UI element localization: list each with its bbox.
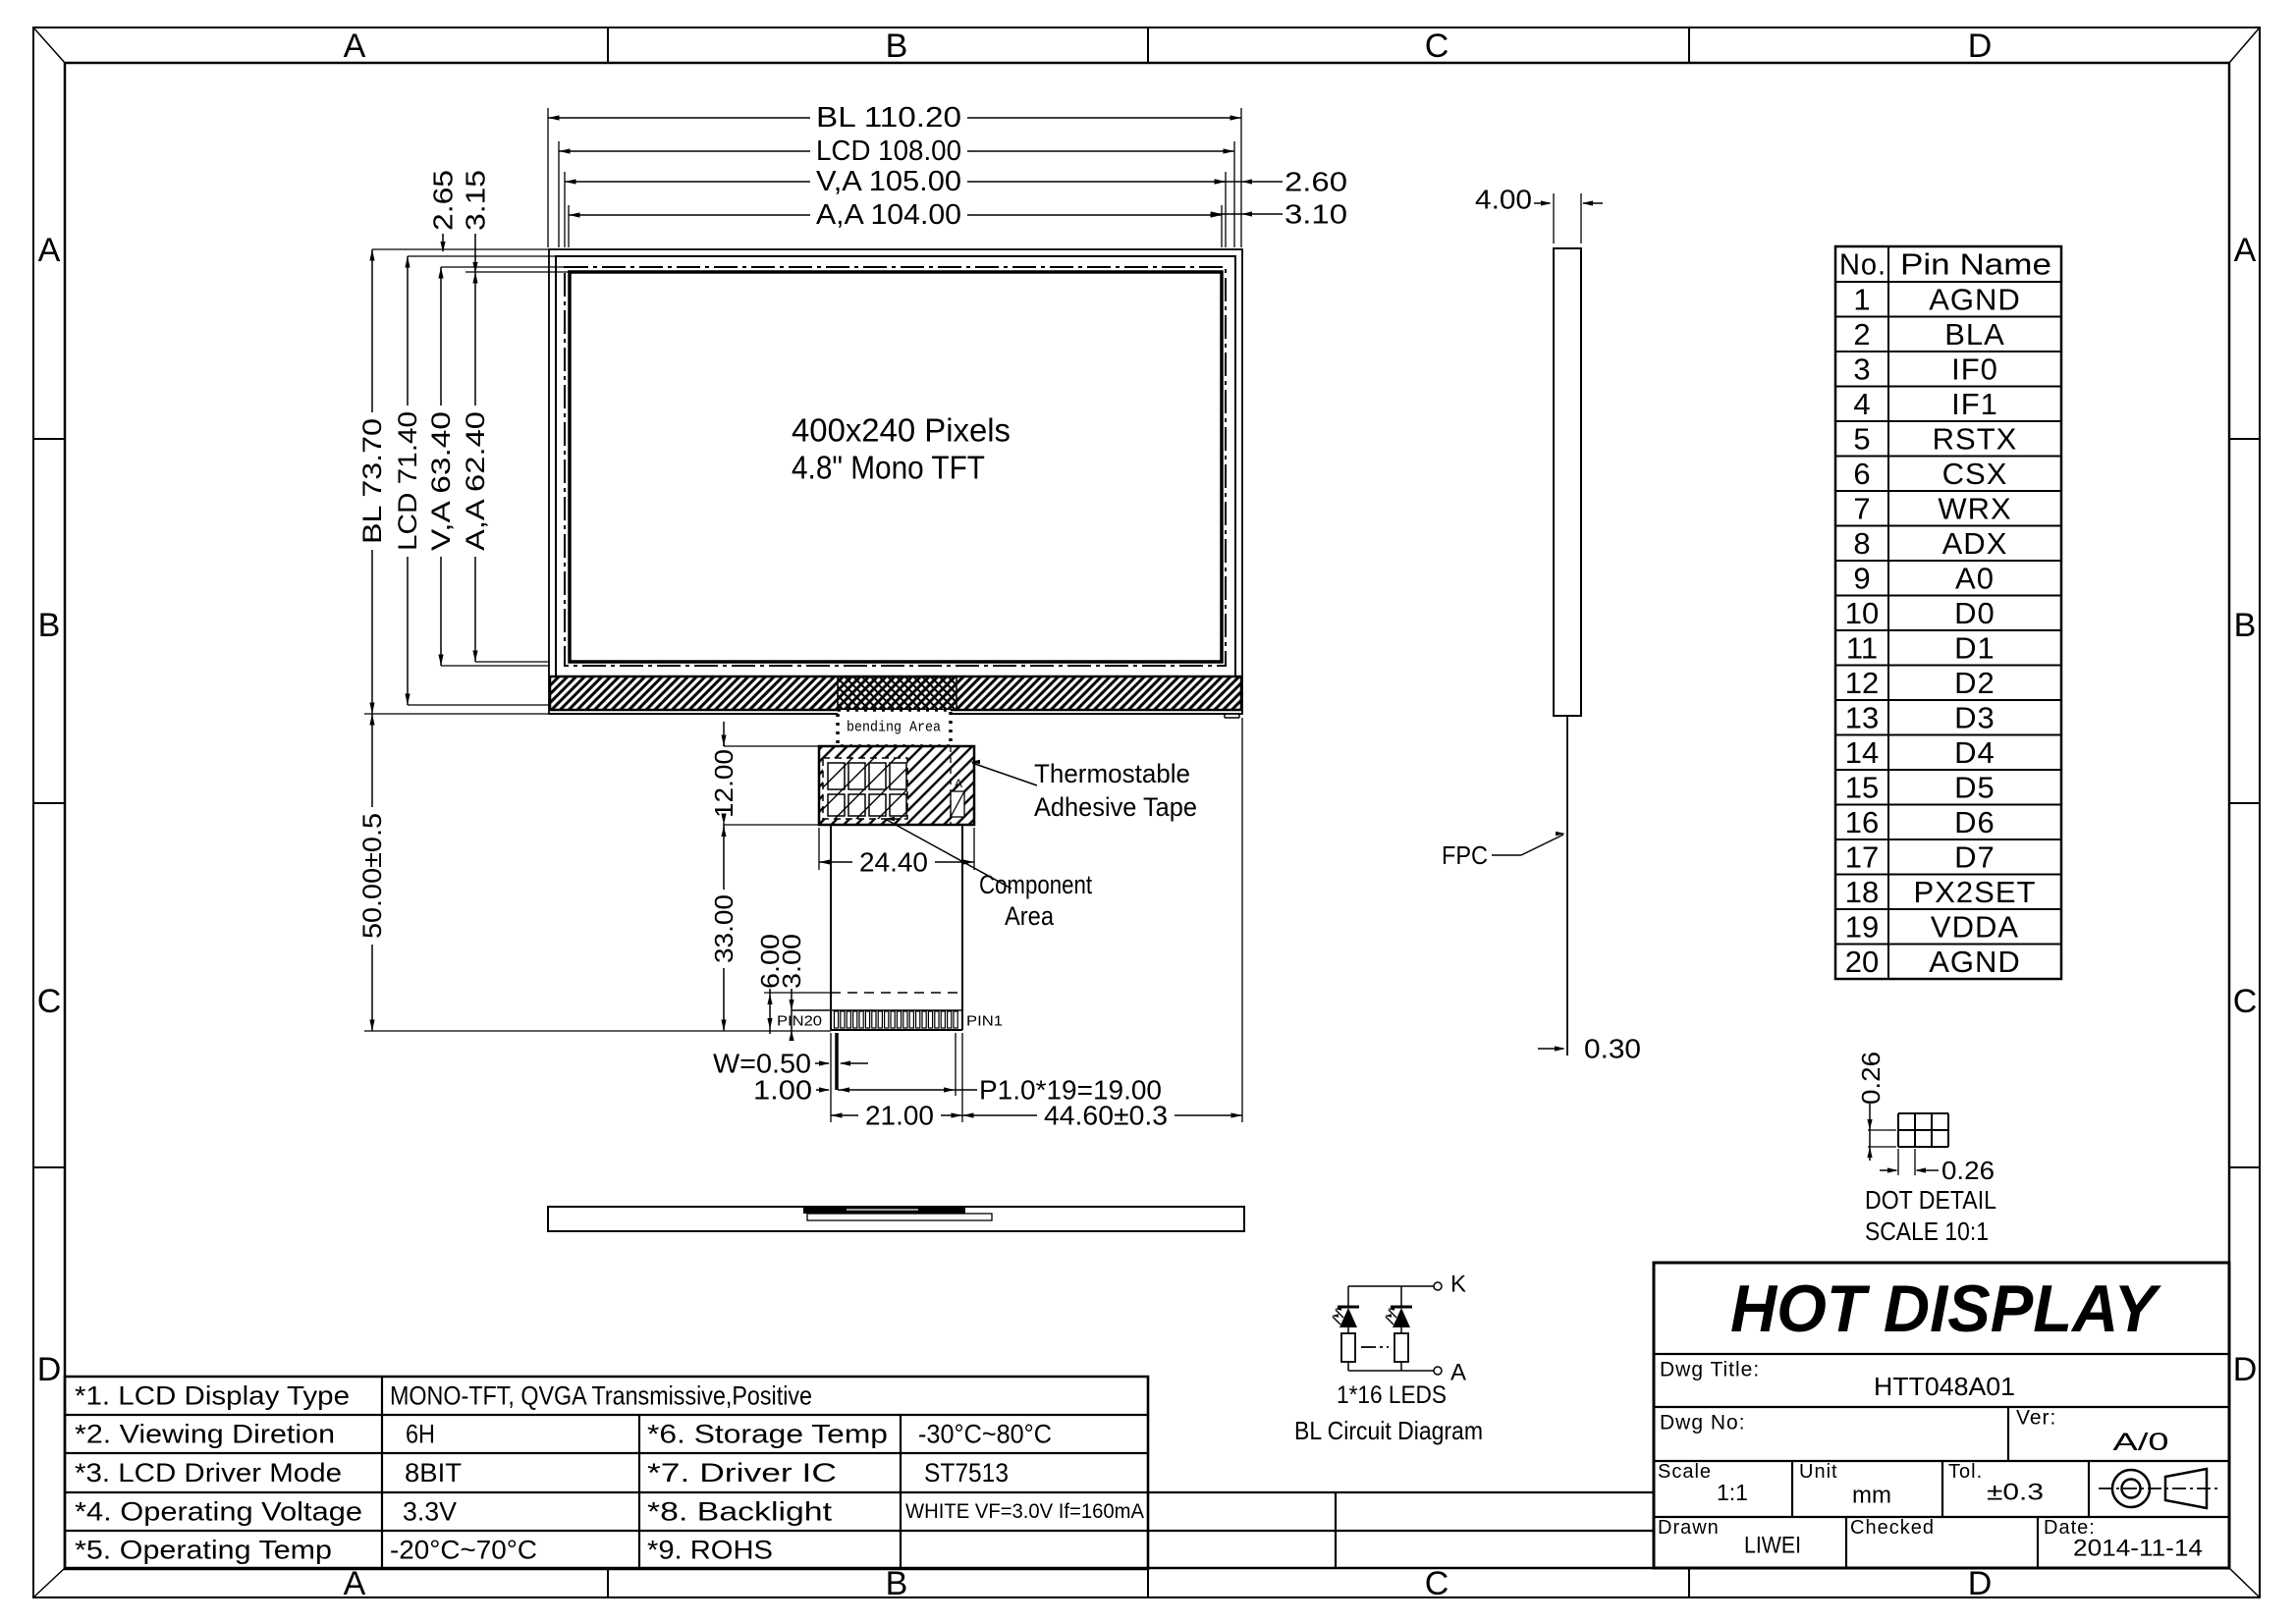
svg-text:A0: A0 <box>1955 561 1995 595</box>
svg-text:±0.3: ±0.3 <box>1987 1480 2044 1506</box>
svg-text:Checked: Checked <box>1850 1517 1935 1539</box>
svg-text:A: A <box>1450 1360 1466 1386</box>
svg-text:V,A 105.00: V,A 105.00 <box>816 166 961 197</box>
svg-text:1.00: 1.00 <box>753 1075 812 1106</box>
svg-text:10: 10 <box>1845 596 1879 630</box>
svg-text:13: 13 <box>1845 700 1879 734</box>
svg-text:Pin Name: Pin Name <box>1900 247 2051 282</box>
svg-text:Thermostable: Thermostable <box>1034 759 1190 788</box>
svg-text:*8. Backlight: *8. Backlight <box>647 1497 833 1527</box>
svg-text:PIN1: PIN1 <box>966 1013 1003 1030</box>
svg-text:PIN20: PIN20 <box>777 1013 822 1030</box>
svg-text:3.3V: 3.3V <box>403 1497 457 1527</box>
svg-text:2.60: 2.60 <box>1285 167 1347 197</box>
svg-text:A: A <box>344 1565 366 1602</box>
svg-text:*7. Driver IC: *7. Driver IC <box>647 1458 837 1488</box>
svg-text:D5: D5 <box>1954 770 1995 804</box>
svg-text:IF1: IF1 <box>1951 387 1998 421</box>
svg-text:*5. Operating Temp: *5. Operating Temp <box>75 1536 332 1565</box>
svg-text:A: A <box>38 232 61 269</box>
svg-text:B: B <box>2234 607 2257 644</box>
svg-text:WHITE VF=3.0V If=160mA: WHITE VF=3.0V If=160mA <box>905 1500 1144 1523</box>
svg-text:LCD 108.00: LCD 108.00 <box>816 135 961 167</box>
svg-text:*6. Storage Temp: *6. Storage Temp <box>647 1420 888 1449</box>
svg-text:BL 73.70: BL 73.70 <box>357 418 387 544</box>
svg-text:8: 8 <box>1853 526 1870 561</box>
svg-text:A,A 62.40: A,A 62.40 <box>461 411 490 551</box>
svg-text:PX2SET: PX2SET <box>1914 875 2037 909</box>
svg-text:V,A 63.40: V,A 63.40 <box>426 411 456 551</box>
svg-text:-20°C~70°C: -20°C~70°C <box>390 1536 537 1565</box>
svg-text:AGND: AGND <box>1929 282 2021 316</box>
svg-text:*1. LCD Display Type: *1. LCD Display Type <box>75 1381 350 1411</box>
svg-text:C: C <box>1425 27 1449 65</box>
svg-text:MONO-TFT, QVGA Transmissive,Po: MONO-TFT, QVGA Transmissive,Positive <box>390 1381 812 1411</box>
svg-text:SCALE 10:1: SCALE 10:1 <box>1865 1217 1989 1246</box>
svg-text:50.00±0.5: 50.00±0.5 <box>357 813 387 939</box>
svg-text:Tol.: Tol. <box>1948 1461 1983 1483</box>
svg-text:6H: 6H <box>406 1420 435 1449</box>
svg-text:No.: No. <box>1839 247 1886 282</box>
svg-text:1*16 LEDS: 1*16 LEDS <box>1337 1381 1447 1409</box>
svg-text:Component: Component <box>979 870 1092 899</box>
svg-text:CSX: CSX <box>1942 457 2008 491</box>
svg-text:0.26: 0.26 <box>1941 1156 1995 1185</box>
svg-text:2014-11-14: 2014-11-14 <box>2073 1536 2203 1562</box>
svg-text:400x240 Pixels: 400x240 Pixels <box>792 412 1011 449</box>
svg-text:12.00: 12.00 <box>709 749 738 818</box>
svg-text:BL Circuit Diagram: BL Circuit Diagram <box>1294 1416 1483 1445</box>
svg-text:Dwg Title:: Dwg Title: <box>1660 1359 1760 1381</box>
svg-text:8BIT: 8BIT <box>405 1458 462 1488</box>
svg-text:20: 20 <box>1845 945 1879 979</box>
svg-text:RSTX: RSTX <box>1933 421 2018 456</box>
svg-text:24.40: 24.40 <box>859 847 928 878</box>
svg-text:Drawn: Drawn <box>1658 1517 1720 1539</box>
svg-text:HOT DISPLAY: HOT DISPLAY <box>1730 1271 2161 1346</box>
svg-text:19: 19 <box>1845 909 1879 944</box>
svg-text:K: K <box>1450 1271 1466 1298</box>
svg-text:3.10: 3.10 <box>1285 199 1347 230</box>
svg-text:A,A 104.00: A,A 104.00 <box>816 199 961 231</box>
svg-text:ST7513: ST7513 <box>924 1458 1009 1488</box>
svg-text:D0: D0 <box>1954 596 1995 630</box>
svg-text:3: 3 <box>1853 352 1870 386</box>
svg-text:4: 4 <box>1853 387 1870 421</box>
svg-text:D: D <box>37 1351 62 1388</box>
svg-text:Area: Area <box>1005 901 1055 931</box>
svg-text:IF0: IF0 <box>1951 352 1998 386</box>
svg-text:21.00: 21.00 <box>865 1101 934 1131</box>
svg-text:Adhesive Tape: Adhesive Tape <box>1034 792 1197 822</box>
svg-text:A: A <box>344 27 366 65</box>
svg-text:WRX: WRX <box>1938 491 2011 525</box>
svg-text:mm: mm <box>1852 1483 1891 1509</box>
svg-text:B: B <box>38 607 61 644</box>
svg-text:0.26: 0.26 <box>1856 1052 1886 1105</box>
svg-text:9: 9 <box>1853 561 1870 595</box>
svg-text:14: 14 <box>1845 735 1879 770</box>
svg-text:A: A <box>2234 232 2257 269</box>
svg-text:11: 11 <box>1846 630 1878 665</box>
svg-text:A/0: A/0 <box>2113 1429 2169 1456</box>
svg-text:ADX: ADX <box>1942 526 2008 561</box>
svg-text:LCD 71.40: LCD 71.40 <box>393 411 422 551</box>
svg-text:C: C <box>37 983 62 1020</box>
svg-text:D: D <box>1968 27 1993 65</box>
svg-text:VDDA: VDDA <box>1931 909 2019 944</box>
svg-text:C: C <box>2233 983 2258 1020</box>
svg-text:LIWEI: LIWEI <box>1744 1533 1801 1559</box>
svg-text:Unit: Unit <box>1799 1461 1838 1483</box>
svg-text:D3: D3 <box>1954 700 1995 734</box>
svg-text:BLA: BLA <box>1944 317 2005 352</box>
svg-text:Scale: Scale <box>1658 1461 1712 1483</box>
svg-text:D: D <box>1968 1565 1993 1602</box>
svg-text:12: 12 <box>1845 666 1879 700</box>
svg-text:1: 1 <box>1853 282 1870 316</box>
svg-text:4.00: 4.00 <box>1475 185 1532 215</box>
svg-text:D6: D6 <box>1954 805 1995 839</box>
svg-text:3.00: 3.00 <box>777 934 806 989</box>
svg-text:*9. ROHS: *9. ROHS <box>647 1536 773 1565</box>
svg-text:16: 16 <box>1845 805 1879 839</box>
svg-text:6: 6 <box>1853 457 1870 491</box>
svg-text:17: 17 <box>1845 839 1879 874</box>
svg-text:D4: D4 <box>1954 735 1995 770</box>
svg-text:D7: D7 <box>1954 839 1995 874</box>
svg-text:0.30: 0.30 <box>1584 1034 1641 1064</box>
svg-text:7: 7 <box>1853 491 1870 525</box>
svg-text:B: B <box>886 27 908 65</box>
svg-text:BL 110.20: BL 110.20 <box>816 102 961 134</box>
svg-text:HTT048A01: HTT048A01 <box>1874 1372 2015 1401</box>
svg-text:1:1: 1:1 <box>1717 1480 1748 1505</box>
svg-text:*4. Operating Voltage: *4. Operating Voltage <box>75 1497 362 1527</box>
svg-text:2: 2 <box>1853 317 1870 352</box>
svg-text:D: D <box>2233 1351 2258 1388</box>
svg-text:44.60±0.3: 44.60±0.3 <box>1044 1101 1168 1131</box>
svg-text:B: B <box>886 1565 908 1602</box>
svg-text:*3. LCD Driver Mode: *3. LCD Driver Mode <box>75 1458 342 1488</box>
svg-text:Dwg No:: Dwg No: <box>1660 1412 1746 1434</box>
svg-text:3.15: 3.15 <box>461 170 491 231</box>
svg-text:DOT DETAIL: DOT DETAIL <box>1865 1185 1996 1215</box>
svg-text:5: 5 <box>1853 421 1870 456</box>
svg-text:18: 18 <box>1845 875 1879 909</box>
svg-text:2.65: 2.65 <box>428 170 459 231</box>
svg-text:4.8" Mono TFT: 4.8" Mono TFT <box>792 450 985 486</box>
svg-text:15: 15 <box>1845 770 1879 804</box>
svg-text:FPC: FPC <box>1442 840 1488 870</box>
svg-text:33.00: 33.00 <box>709 894 738 963</box>
svg-text:D1: D1 <box>1954 630 1995 665</box>
svg-text:C: C <box>1425 1565 1449 1602</box>
svg-text:bending Area: bending Area <box>847 720 941 736</box>
svg-text:Ver:: Ver: <box>2016 1407 2056 1430</box>
svg-text:A: A <box>955 777 962 790</box>
svg-text:AGND: AGND <box>1929 945 2021 979</box>
svg-text:-30°C~80°C: -30°C~80°C <box>918 1420 1052 1449</box>
svg-text:D2: D2 <box>1954 666 1995 700</box>
svg-text:*2. Viewing Diretion: *2. Viewing Diretion <box>75 1420 335 1449</box>
